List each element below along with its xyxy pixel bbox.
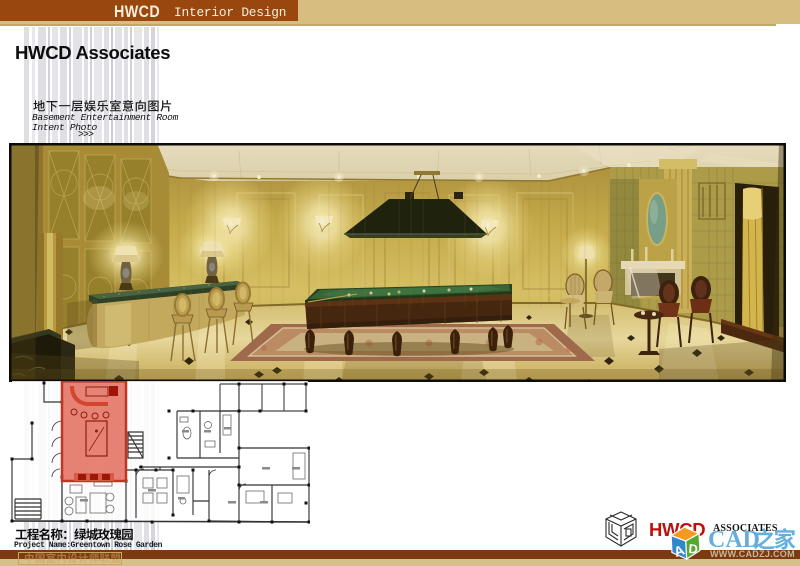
svg-text:D: D <box>688 541 698 557</box>
